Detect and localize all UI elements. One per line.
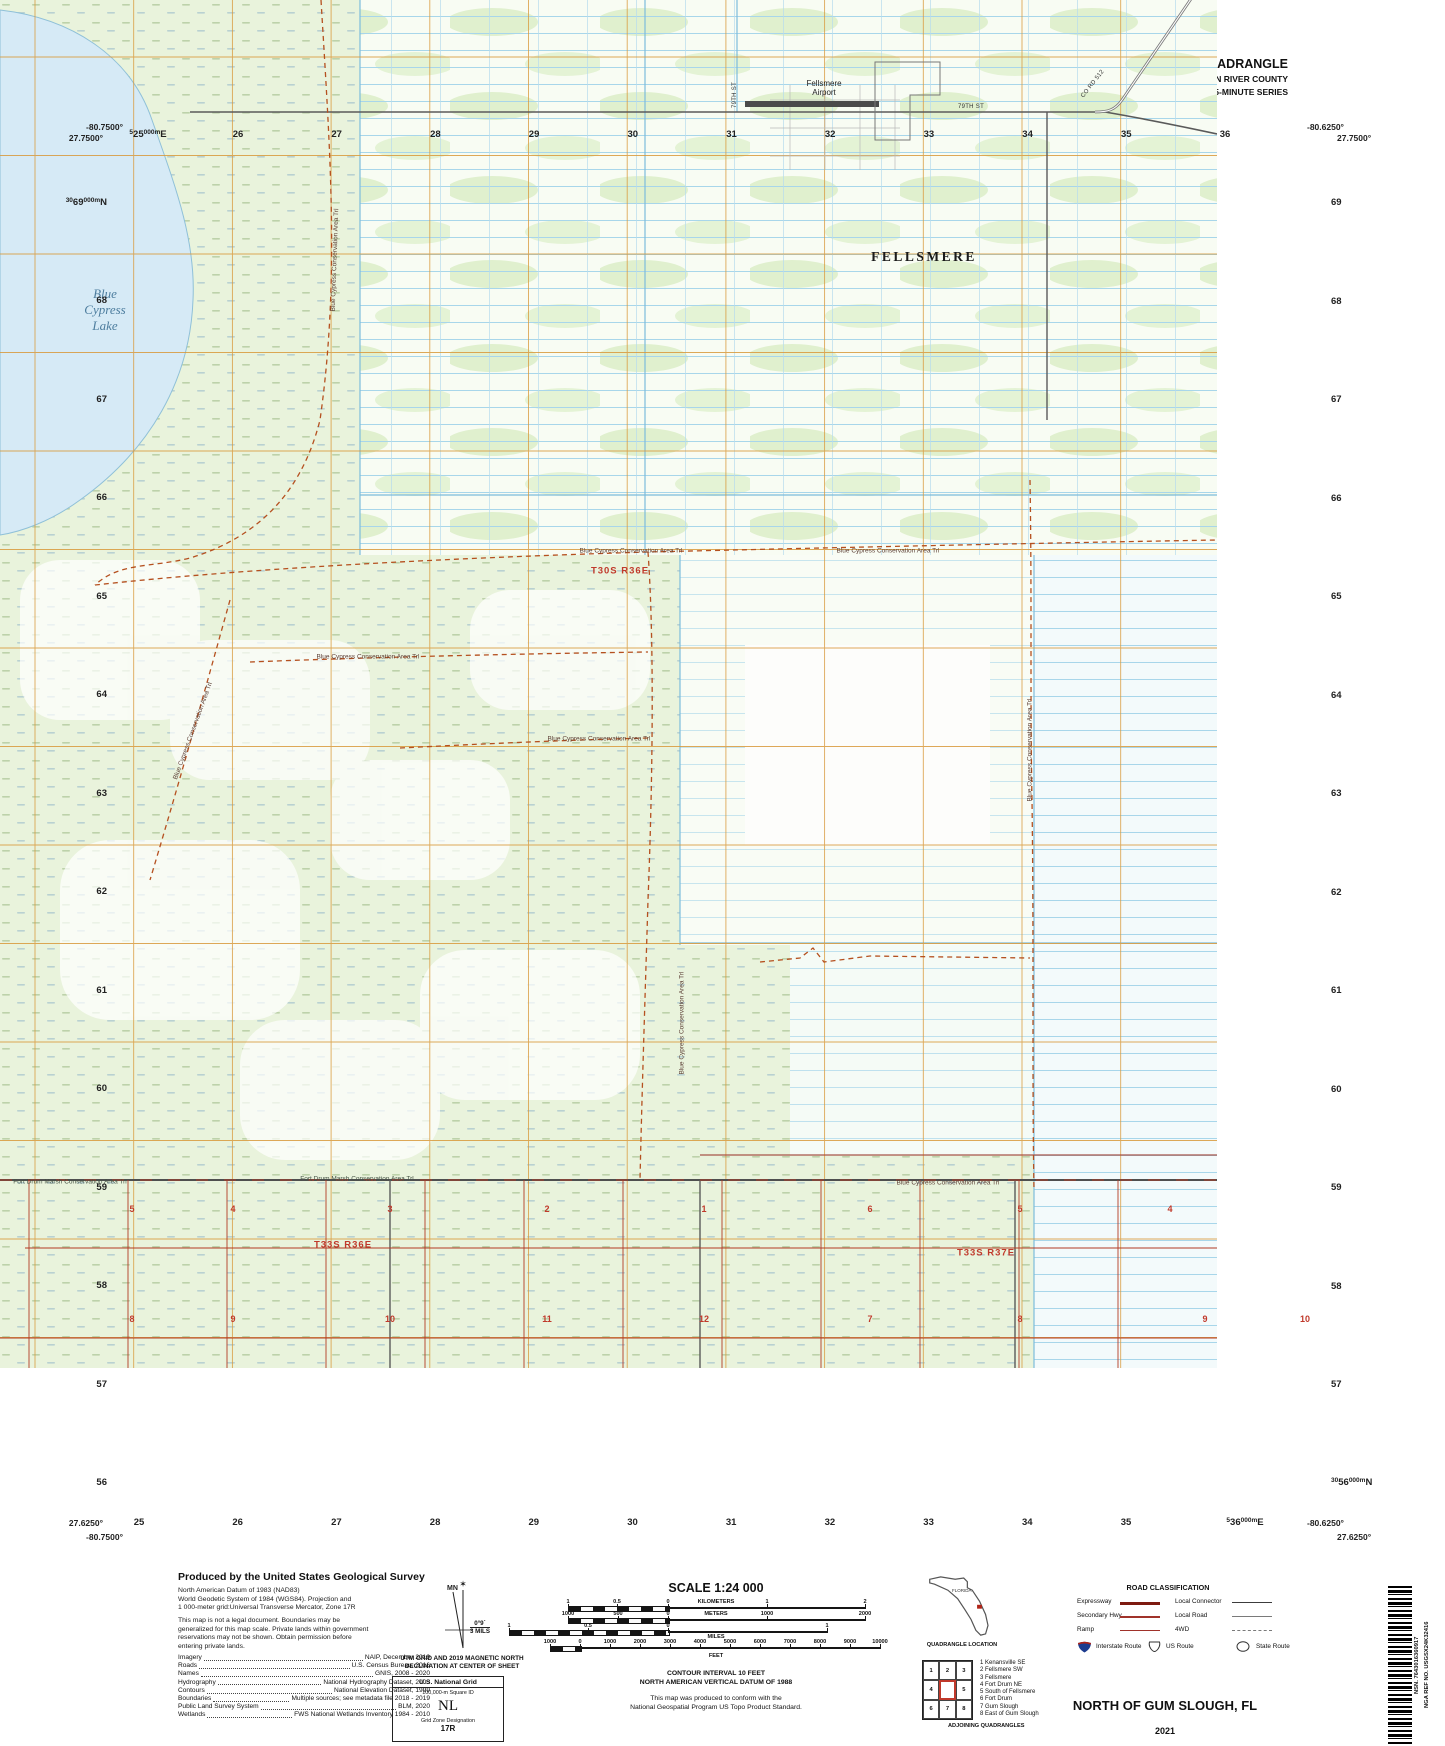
scale-bar-tick — [820, 1644, 821, 1649]
dotted-leader — [199, 1668, 349, 1669]
grid-number: 30 — [628, 129, 639, 140]
corner-coord-bl-lon: -80.7500° — [86, 1532, 123, 1542]
scale-title: SCALE 1:24 000 — [668, 1581, 763, 1595]
legal-block: This map is not a legal document. Bounda… — [178, 1617, 430, 1651]
adjoining-quad-name: 5 South of Fellsmere — [980, 1689, 1039, 1696]
usng-title: U.S. National Grid — [393, 1677, 503, 1688]
scale-bar-tick — [850, 1644, 851, 1649]
road-line-expressway — [1120, 1602, 1160, 1605]
dotted-leader — [261, 1709, 396, 1710]
road-line-local-road — [1232, 1616, 1272, 1617]
adj-cell-2: 2 — [939, 1661, 955, 1680]
grid-number: 60 — [1331, 1084, 1342, 1095]
conformance-note: This map was produced to conform with th… — [630, 1694, 802, 1712]
source-row: Roads U.S. Census Bureau, 2016 — [178, 1662, 430, 1670]
adjoining-grid: 1 2 3 4 5 6 7 8 — [922, 1660, 973, 1720]
scale-bar-tick — [568, 1604, 569, 1609]
road-line-local-connector — [1232, 1602, 1272, 1603]
grid-number: 64 — [96, 689, 107, 700]
section-number: 9 — [1202, 1314, 1207, 1324]
adjoining-quad-name: 3 Fellsmere — [980, 1675, 1039, 1682]
adj-cell-6: 6 — [923, 1700, 939, 1719]
grid-number: 66 — [96, 492, 107, 503]
scale-bar-tick — [668, 1628, 669, 1633]
grid-number: 57 — [96, 1379, 107, 1390]
adj-cell-4: 4 — [923, 1680, 939, 1699]
road-class-secondary: Secondary Hwy — [1077, 1612, 1122, 1619]
road-line-4wd — [1232, 1630, 1272, 1631]
grid-number: 62 — [1331, 887, 1342, 898]
adj-cell-center — [939, 1680, 955, 1699]
grid-number: 62 — [96, 886, 107, 897]
scale-bar-tick — [767, 1616, 768, 1621]
usng-box: U.S. National Grid 100,000-m Square ID N… — [392, 1676, 504, 1742]
road-line-ramp — [1120, 1630, 1160, 1631]
adjoining-quad-name: 2 Fellsmere SW — [980, 1667, 1039, 1674]
scale-bar-tick — [580, 1644, 581, 1649]
section-number: 5 — [1017, 1204, 1022, 1214]
grid-number: 30 — [627, 1517, 638, 1528]
source-label: Hydrography — [178, 1679, 216, 1687]
adjoining-quad-name: 7 Gum Slough — [980, 1704, 1039, 1711]
section-number: 8 — [1017, 1314, 1022, 1324]
scale-bar-tick — [668, 1616, 669, 1621]
grid-number: 61 — [1331, 985, 1342, 996]
grid-number: 67 — [1331, 394, 1342, 405]
state-route-label: State Route — [1256, 1643, 1290, 1650]
grid-number: 58 — [96, 1280, 107, 1291]
section-number: 6 — [867, 1204, 872, 1214]
road-line-secondary — [1120, 1616, 1160, 1618]
grid-number: 66 — [1331, 493, 1342, 504]
source-label: Imagery — [178, 1654, 202, 1662]
interstate-route-label: Interstate Route — [1096, 1643, 1141, 1650]
dotted-leader — [201, 1676, 373, 1677]
grid-number: 61 — [96, 985, 107, 996]
sheet-year: 2021 — [1155, 1726, 1175, 1736]
grid-number: 25 — [134, 1517, 145, 1528]
grid-number: 32 — [825, 129, 836, 140]
produced-by-title: Produced by the United States Geological… — [178, 1571, 425, 1583]
section-number: 12 — [699, 1314, 709, 1324]
usng-square-id: NL — [393, 1698, 503, 1715]
adjoining-caption: ADJOINING QUADRANGLES — [948, 1723, 1024, 1729]
grid-label-easting-first: 525000mE — [129, 129, 166, 140]
scale-bar-tick — [767, 1604, 768, 1609]
datum-block: North American Datum of 1983 (NAD83)Worl… — [178, 1587, 430, 1613]
grid-number: 28 — [430, 129, 441, 140]
scale-bar-tick — [618, 1616, 619, 1621]
grid-number: 36 — [1220, 129, 1231, 140]
scale-bar-unit: METERS — [704, 1611, 727, 1617]
grid-number: 28 — [430, 1517, 441, 1528]
road-classification-title: ROAD CLASSIFICATION — [1127, 1583, 1210, 1592]
section-number: 5 — [129, 1204, 134, 1214]
grid-number: 27 — [331, 129, 342, 140]
adjoining-list: 1 Kenansville SE2 Fellsmere SW3 Fellsmer… — [980, 1660, 1039, 1718]
road-class-expressway: Expressway — [1077, 1598, 1111, 1605]
section-number: 4 — [1167, 1204, 1172, 1214]
corner-coord-tl-lon: -80.7500° — [86, 122, 123, 132]
section-number: 1 — [701, 1204, 706, 1214]
scale-bar-unit: FEET — [709, 1653, 723, 1659]
florida-label: FLORIDA — [952, 1588, 972, 1593]
adj-cell-8: 8 — [956, 1700, 972, 1719]
source-row: Imagery NAIP, December 2019 — [178, 1654, 430, 1662]
grid-number: 29 — [529, 129, 540, 140]
section-number: 10 — [385, 1314, 395, 1324]
section-number: 2 — [544, 1204, 549, 1214]
grid-label-easting-last: 536000mE — [1226, 1517, 1263, 1528]
section-number: 3 — [387, 1204, 392, 1214]
source-label: Boundaries — [178, 1695, 211, 1703]
scale-bar-tick — [568, 1616, 569, 1621]
grid-number: 34 — [1022, 1517, 1033, 1528]
grid-number: 68 — [1331, 296, 1342, 307]
road-class-4wd: 4WD — [1175, 1626, 1189, 1633]
adj-cell-3: 3 — [956, 1661, 972, 1680]
section-numbers-row: 8910111278910 — [0, 1314, 1217, 1326]
source-label: Contours — [178, 1687, 205, 1695]
grid-number: 35 — [1121, 129, 1132, 140]
declination-diagram: ✶ MN — [425, 1578, 495, 1652]
adjoining-quad-name: 4 Fort Drum NE — [980, 1682, 1039, 1689]
state-route-icon — [1236, 1641, 1250, 1652]
grid-number: 27 — [331, 1517, 342, 1528]
section-number: 11 — [542, 1314, 552, 1324]
scale-bar-tick — [509, 1628, 510, 1633]
corner-coord-br-lon: -80.6250° — [1307, 1518, 1344, 1528]
florida-outline — [925, 1572, 1000, 1640]
scale-bar-tick — [865, 1616, 866, 1621]
datum-line: 1 000-meter grid:Universal Transverse Me… — [178, 1604, 430, 1613]
datum-line: North American Datum of 1983 (NAD83) — [178, 1587, 430, 1596]
scale-bar-tick — [760, 1644, 761, 1649]
dotted-leader — [213, 1701, 289, 1702]
scale-bar-unit: MILES — [707, 1634, 724, 1640]
legal-line: reservations may not be shown. Obtain pe… — [178, 1634, 430, 1643]
scale-bar-tick — [588, 1628, 589, 1633]
grid-label-northing-first: 3069000mN — [66, 197, 107, 208]
quad-location-marker — [977, 1605, 982, 1609]
scale-bar-tick — [670, 1644, 671, 1649]
grid-number: 26 — [232, 1517, 243, 1528]
declination-values: 0°9´ 3 MILS — [470, 1620, 490, 1635]
svg-text:MN: MN — [447, 1585, 458, 1592]
grid-number: 67 — [96, 394, 107, 405]
us-route-shield-icon — [1148, 1641, 1161, 1652]
grid-number: 33 — [924, 129, 935, 140]
grid-number: 64 — [1331, 690, 1342, 701]
section-number: 9 — [230, 1314, 235, 1324]
map-canvas — [0, 0, 1217, 1368]
dotted-leader — [207, 1717, 292, 1718]
section-numbers-row: 54321654 — [0, 1204, 1217, 1216]
usng-subtitle: 100,000-m Square ID — [393, 1690, 503, 1696]
grid-number: 65 — [1331, 591, 1342, 602]
grid-number: 33 — [923, 1517, 934, 1528]
sheet-name: NORTH OF GUM SLOUGH, FL — [1073, 1698, 1257, 1713]
scale-bar-tick — [865, 1604, 866, 1609]
declination-caption: UTM GRID AND 2019 MAGNETIC NORTH DECLINA… — [400, 1655, 523, 1671]
scale-bar-tick — [700, 1644, 701, 1649]
grid-number: 69 — [1331, 197, 1342, 208]
road-class-local-connector: Local Connector — [1175, 1598, 1222, 1605]
airport-runway — [745, 101, 879, 107]
scale-bar-tick — [610, 1644, 611, 1649]
grid-label-northing-last: 3056000mN — [1331, 1477, 1372, 1488]
section-number: 8 — [129, 1314, 134, 1324]
road-class-ramp: Ramp — [1077, 1626, 1094, 1633]
grid-number: 29 — [529, 1517, 540, 1528]
dotted-leader — [207, 1693, 332, 1694]
source-label: Names — [178, 1670, 199, 1678]
corner-coord-tr-lon: -80.6250° — [1307, 122, 1344, 132]
section-number: 4 — [230, 1204, 235, 1214]
legal-line: This map is not a legal document. Bounda… — [178, 1617, 430, 1626]
adjoining-quad-name: 1 Kenansville SE — [980, 1660, 1039, 1667]
grid-number: 56 — [96, 1477, 107, 1488]
grid-number: 58 — [1331, 1281, 1342, 1292]
source-label: Roads — [178, 1662, 197, 1670]
grid-number: 59 — [1331, 1182, 1342, 1193]
usng-zone: 17R — [393, 1724, 503, 1733]
scale-bar-checker — [550, 1646, 582, 1652]
adjoining-quad-name: 8 East of Gum Slough — [980, 1711, 1039, 1718]
grid-number: 59 — [96, 1182, 107, 1193]
nga-ref-text: NGA REF NO. USGSX24K32416 — [1424, 1586, 1430, 1744]
grid-number: 31 — [726, 1517, 737, 1528]
grid-number: 65 — [96, 591, 107, 602]
corner-coord-br-lat: 27.6250° — [1337, 1532, 1371, 1542]
corner-coord-bl-lat: 27.6250° — [69, 1518, 103, 1528]
grid-number: 57 — [1331, 1379, 1342, 1390]
grid-number: 63 — [96, 788, 107, 799]
source-label: Public Land Survey System — [178, 1703, 259, 1711]
grid-number: 60 — [96, 1083, 107, 1094]
datum-line: World Geodetic System of 1984 (WGS84). P… — [178, 1596, 430, 1605]
grid-number: 34 — [1022, 129, 1033, 140]
scale-bar-tick — [790, 1644, 791, 1649]
legal-line: entering private lands. — [178, 1643, 430, 1652]
adj-cell-1: 1 — [923, 1661, 939, 1680]
scale-bar-line — [550, 1647, 880, 1649]
corner-coord-tl-lat: 27.7500° — [69, 133, 103, 143]
grid-number: 35 — [1121, 1517, 1132, 1528]
scale-bar-tick — [827, 1628, 828, 1633]
scale-bar-tick — [640, 1644, 641, 1649]
nsn-text: NSN. 7643016360917 — [1414, 1586, 1420, 1744]
us-route-label: US Route — [1166, 1643, 1194, 1650]
contour-note: CONTOUR INTERVAL 10 FEET NORTH AMERICAN … — [640, 1669, 792, 1687]
adj-cell-7: 7 — [939, 1700, 955, 1719]
grid-number: 68 — [96, 295, 107, 306]
grid-number: 31 — [726, 129, 737, 140]
scale-bar-tick — [550, 1644, 551, 1649]
adjoining-quad-name: 6 Fort Drum — [980, 1696, 1039, 1703]
grid-number: 32 — [825, 1517, 836, 1528]
grid-number: 63 — [1331, 788, 1342, 799]
scale-bar-tick — [880, 1644, 881, 1649]
interstate-shield-icon — [1077, 1640, 1092, 1653]
source-label: Wetlands — [178, 1711, 205, 1719]
grid-number: 26 — [233, 129, 244, 140]
svg-text:✶: ✶ — [459, 1579, 467, 1589]
scale-bar-tick — [730, 1644, 731, 1649]
corner-coord-tr-lat: 27.7500° — [1337, 133, 1371, 143]
legal-line: generalized for this map scale. Private … — [178, 1626, 430, 1635]
dotted-leader — [204, 1660, 363, 1661]
dotted-leader — [218, 1684, 322, 1685]
adj-cell-5: 5 — [956, 1680, 972, 1699]
section-number: 7 — [867, 1314, 872, 1324]
scale-bar-tick — [668, 1604, 669, 1609]
quad-location-caption: QUADRANGLE LOCATION — [927, 1642, 997, 1648]
barcode — [1388, 1586, 1412, 1744]
scale-bar-unit: KILOMETERS — [698, 1599, 735, 1605]
map-area[interactable]: Blue Cypress Lake Fellsmere Airport FELL… — [0, 0, 1217, 1368]
road-class-local-road: Local Road — [1175, 1612, 1207, 1619]
scale-bar-tick — [617, 1604, 618, 1609]
scale-bar-checker — [509, 1630, 670, 1636]
